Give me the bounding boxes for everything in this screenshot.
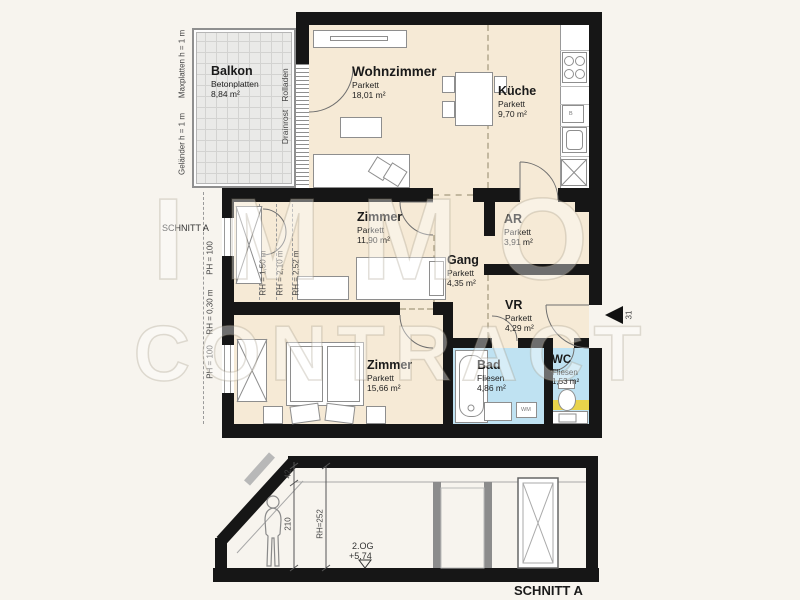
- balcony-door-window: [296, 64, 309, 188]
- dim-ph-bottom: PH = 100: [206, 345, 215, 379]
- wall: [433, 302, 453, 315]
- chair: [442, 76, 455, 93]
- wall: [589, 12, 602, 202]
- dim-rh-030: RH = 0,30 m: [206, 289, 215, 334]
- section-door: [518, 478, 558, 568]
- wall: [589, 348, 602, 438]
- room-label-kueche: Küche Parkett 9,70 m²: [498, 84, 536, 119]
- pillow: [429, 261, 444, 296]
- mattress: [327, 346, 360, 402]
- ceiling-height-210: RH = 2,10 m: [276, 250, 285, 295]
- wall: [222, 188, 433, 202]
- dashed-opening-wohnzimmer-gang: [433, 194, 473, 196]
- stove: [562, 52, 587, 83]
- section-drawing: [213, 455, 599, 582]
- room-label-balkon: Balkon Betonplatten 8,84 m²: [211, 64, 259, 99]
- sofa: [313, 154, 410, 188]
- section-cut-label: SCHNITT A: [162, 223, 209, 233]
- room-label-vr: VR Parkett 4,29 m²: [505, 298, 534, 333]
- section-wall: [433, 482, 441, 568]
- counter-divider: [560, 86, 589, 87]
- wall: [443, 338, 492, 348]
- sink-basin: [566, 130, 583, 150]
- dishwasher: [561, 159, 587, 186]
- section-dim-rh252: RH=252: [316, 509, 325, 539]
- wall: [484, 264, 602, 275]
- room-label-zimmer1: Zimmer Parkett 11,90 m²: [357, 210, 402, 245]
- washing-machine-label: WM: [521, 407, 531, 413]
- wall: [222, 424, 602, 438]
- wardrobe: [237, 339, 267, 402]
- counter-divider: [560, 156, 589, 157]
- level-marker-icon: [359, 560, 371, 568]
- room-label-bad: Bad Fliesen 4,86 m²: [477, 358, 506, 393]
- coffee-table: [340, 117, 382, 138]
- dim-ph-top: PH = 100: [206, 241, 215, 275]
- balcony-note-maxplatten: Maxplatten h = 1 m: [178, 30, 187, 98]
- section-dim-210: 210: [284, 517, 293, 530]
- room-label-zimmer2: Zimmer Parkett 15,66 m²: [367, 358, 412, 393]
- wall: [589, 202, 602, 305]
- wall: [575, 202, 589, 212]
- section-level-value: +5,74: [349, 551, 372, 561]
- ceiling-height-252: RH = 2,52 m: [292, 250, 301, 295]
- wall: [222, 302, 400, 315]
- person-figure: [265, 496, 281, 566]
- wall: [558, 188, 602, 202]
- toilet-bowl: [558, 389, 576, 411]
- ceiling-height-150: RH = 1,50 m: [259, 250, 268, 295]
- room-label-ar: AR Parkett 3,91 m²: [504, 212, 533, 247]
- room-label-wc: WC Fliesen 1,53 m²: [552, 354, 579, 386]
- window: [222, 345, 234, 393]
- balcony-deck: [192, 28, 296, 188]
- entrance-arrow-icon: [605, 306, 623, 324]
- section-level-name: 2.OG: [352, 541, 374, 551]
- roof-hatch: [247, 455, 272, 483]
- wall: [484, 202, 495, 236]
- wall: [222, 188, 234, 218]
- balcony-note-rolladen: Rolladen: [280, 68, 290, 102]
- entrance-number: 31: [625, 311, 634, 320]
- balcony-note-gelaender: Geländer h = 1 m: [178, 113, 187, 175]
- wall: [473, 188, 520, 202]
- section-title: SCHNITT A: [514, 583, 583, 598]
- nightstand: [366, 406, 386, 424]
- kitchen-unit: [562, 105, 584, 123]
- dining-table: [455, 72, 493, 126]
- balcony-note-drainrost: Drainrost: [280, 110, 290, 144]
- nightstand: [263, 406, 283, 424]
- wall: [296, 12, 309, 64]
- dashed-boundary-gang-vr: [487, 275, 489, 338]
- section-dim-42: 42: [284, 470, 293, 479]
- dashed-opening-zimmer2: [400, 308, 433, 310]
- section-opening: [441, 488, 484, 568]
- wc-niche: [551, 411, 588, 424]
- sideboard-slot: [330, 36, 388, 41]
- desk: [297, 276, 349, 300]
- counter-divider: [560, 50, 589, 51]
- mattress: [290, 346, 323, 402]
- wall: [574, 338, 589, 348]
- window: [222, 218, 234, 256]
- wall: [296, 12, 602, 25]
- chair: [442, 101, 455, 118]
- floorplan-page: Balkon Betonplatten 8,84 m² Wohnzimmer P…: [0, 0, 800, 600]
- wall: [222, 256, 234, 345]
- kitchen-unit-label: B: [569, 111, 573, 117]
- washbasin: [484, 402, 512, 421]
- section-wall: [484, 482, 492, 568]
- room-label-gang: Gang Parkett 4,35 m²: [447, 253, 479, 288]
- room-label-wohnzimmer: Wohnzimmer Parkett 18,01 m²: [352, 64, 437, 100]
- wall: [443, 315, 453, 425]
